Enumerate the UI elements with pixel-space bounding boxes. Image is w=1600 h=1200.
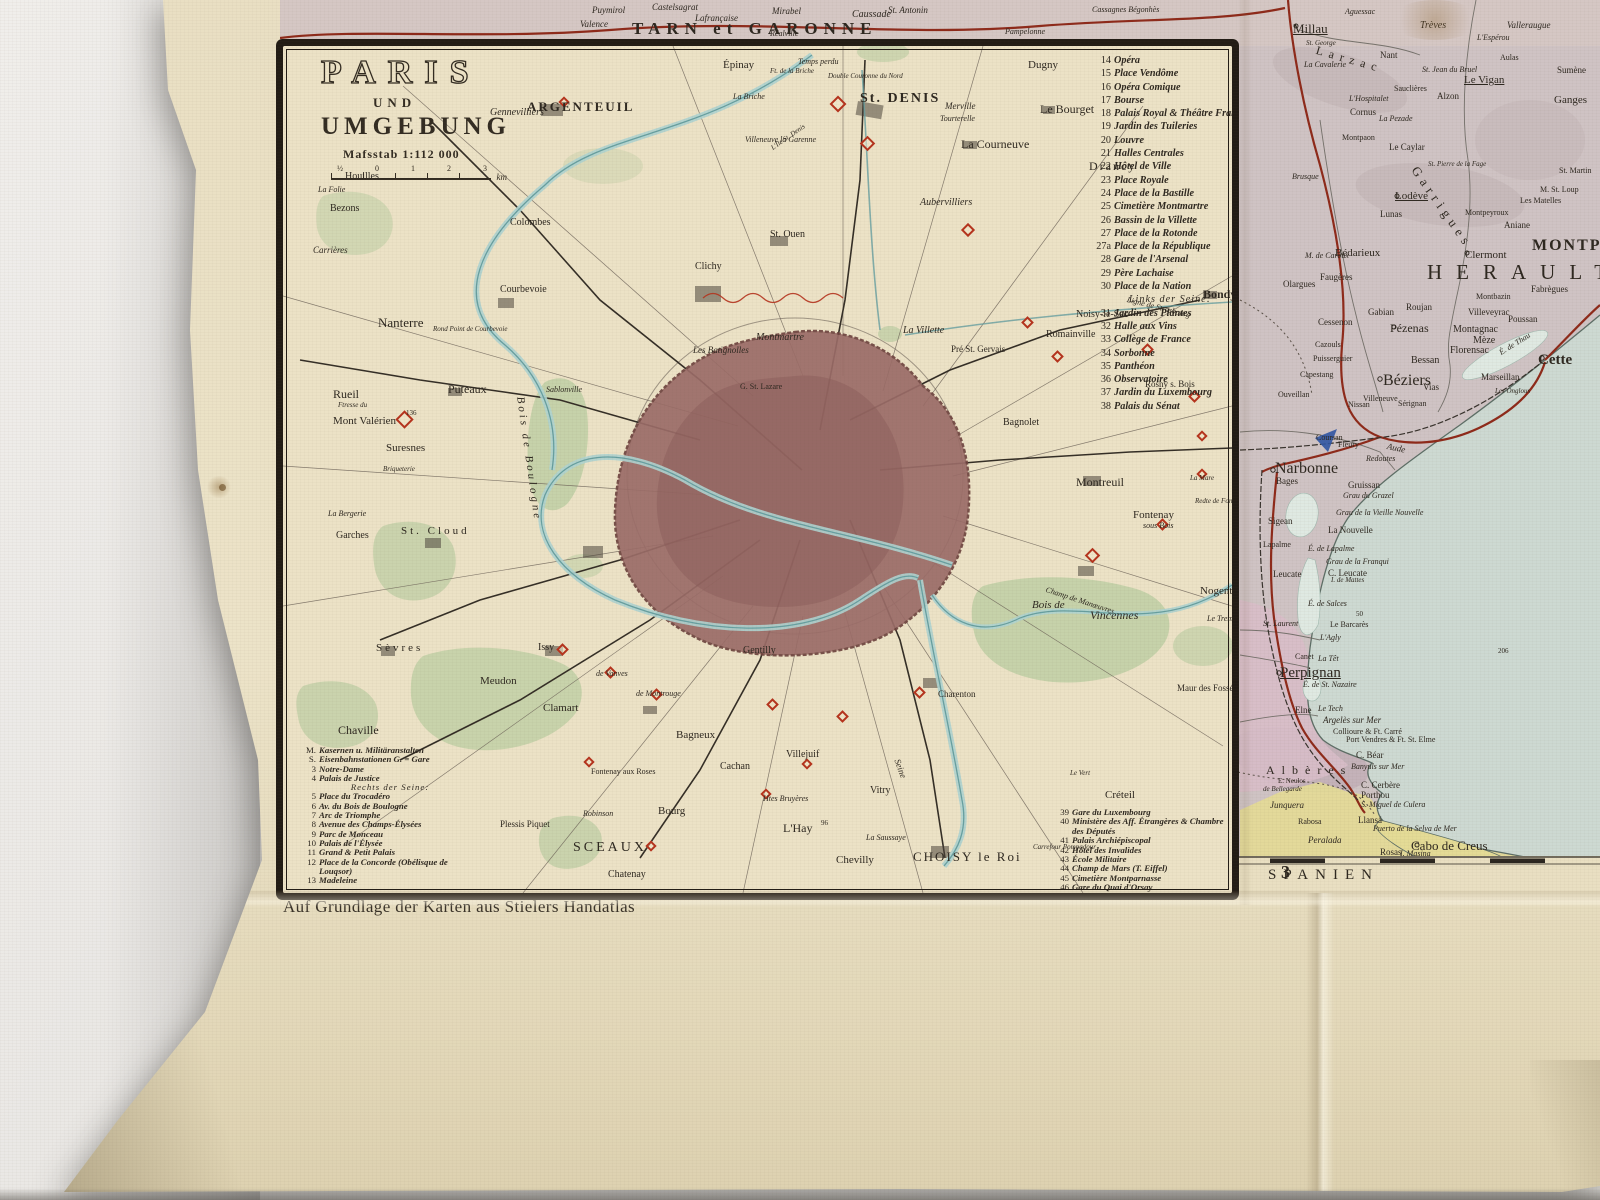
legend-text: Observatoire (1114, 373, 1168, 386)
place-label: Ouveillan (1278, 391, 1310, 399)
place-label: Double Couronne du Nord (828, 73, 903, 80)
legend-text: Place Vendôme (1114, 67, 1178, 80)
place-label: Vitry (870, 786, 891, 796)
legend-number: 33 (1095, 333, 1114, 346)
legend-number: 36 (1095, 373, 1114, 386)
place-label: Pampelonne (1005, 28, 1045, 36)
place-label: La Nouvelle (1328, 526, 1373, 535)
legend-number: 34 (1095, 347, 1114, 360)
place-label: Le Caylar (1389, 143, 1425, 152)
place-label: Seine (893, 758, 908, 779)
place-label: Sablonville (546, 386, 582, 394)
place-label: St. Pierre de la Fage (1428, 161, 1486, 168)
place-label: Millau (1293, 22, 1328, 35)
place-label: Olargues (1283, 280, 1315, 289)
legend-number: 3 (300, 765, 319, 774)
legend-number: 6 (300, 802, 319, 811)
place-label: L'Espérou (1477, 34, 1510, 42)
place-label: Redte de Fontenay (1195, 498, 1232, 505)
place-label: Chatenay (608, 870, 646, 880)
legend-text: Madeleine (319, 876, 357, 885)
place-label: Meudon (480, 676, 517, 687)
legend-bottom-right: 39 Gare du Luxembourg 40 Ministère des A… (1053, 808, 1228, 893)
legend-number: 22 (1095, 160, 1114, 173)
legend-row: 29 Père Lachaise (1095, 267, 1232, 280)
place-label: Carrières (313, 246, 348, 255)
place-label: St. DENIS (860, 92, 940, 106)
place-label: Alzon (1437, 92, 1459, 101)
place-label: Plessis Piquet (500, 820, 550, 829)
place-label: Gruissan (1348, 481, 1380, 490)
legend-row: 12 Place de la Concorde (Obélisque de Lo… (300, 858, 480, 877)
place-label: 136 (406, 410, 417, 417)
place-label: Sérignan (1398, 400, 1426, 408)
legend-text: Cimetière Montmartre (1114, 200, 1208, 213)
scale-bar-line (331, 173, 491, 180)
place-label: Grau du Grazel (1343, 492, 1394, 500)
title-und: UND (373, 95, 551, 111)
legend-number: 46 (1053, 883, 1072, 892)
place-label: 3 (1281, 863, 1290, 881)
legend-number: 20 (1095, 134, 1114, 147)
place-label: Ganges (1554, 95, 1587, 106)
place-label: Junquera (1270, 801, 1304, 810)
legend-number: 26 (1095, 214, 1114, 227)
legend-number: 27a (1095, 240, 1114, 253)
place-label: Aguessac (1345, 8, 1375, 16)
legend-number: 14 (1095, 54, 1114, 67)
place-label: Montmartre (756, 333, 804, 343)
legend-text: Louvre (1114, 134, 1144, 147)
legend-number: 23 (1095, 174, 1114, 187)
legend-number: 35 (1095, 360, 1114, 373)
legend-row: 21 Halles Centrales (1095, 147, 1232, 160)
legend-text: Jardin des Plantes (1114, 307, 1192, 320)
place-label: TARN et GARONNE (632, 20, 878, 37)
place-label: St. Ouen (770, 230, 805, 240)
place-label: Marseillan (1481, 373, 1520, 382)
scale-ticks: ½0123 (337, 164, 487, 173)
legend-text: Bourse (1114, 94, 1144, 107)
place-label: Sigean (1268, 517, 1293, 526)
legend-row: 30 Place de la Nation (1095, 280, 1232, 293)
place-label: 206 (1498, 648, 1509, 655)
legend-number: 13 (300, 876, 319, 885)
place-label: Chevilly (836, 855, 874, 866)
place-label: Chaville (338, 724, 379, 736)
legend-text: Place Royale (1114, 174, 1169, 187)
place-label: Créteil (1105, 790, 1135, 801)
place-label: I. de Mattes (1331, 577, 1364, 584)
title-paris: PARIS (321, 54, 551, 92)
legend-text: Panthéon (1114, 360, 1155, 373)
paper-curl-shadow (1530, 1060, 1600, 1192)
place-label: Albères (1266, 764, 1352, 776)
place-label: Suresnes (386, 443, 425, 454)
legend-number: 12 (300, 858, 319, 867)
photo-of-map: ValencePuymirolCastelsagratLafrançaiseTA… (0, 0, 1600, 1200)
legend-row: 27 Place de la Rotonde (1095, 227, 1232, 240)
place-label: Roujan (1406, 303, 1432, 312)
legend-row: 19 Jardin des Tuileries (1095, 120, 1232, 133)
place-label: Rabosa (1298, 818, 1322, 826)
legend-text: Halle aux Vins (1114, 320, 1177, 333)
legend-row: 25 Cimetière Montmartre (1095, 200, 1232, 213)
legend-text: Gare du Quai d'Orsay (1072, 883, 1152, 892)
place-label: Grau de la Vieille Nouvelle (1336, 509, 1423, 517)
place-label: Pézenas (1390, 322, 1429, 334)
legend-number: 18 (1095, 107, 1114, 120)
place-label: É. de Salces (1308, 600, 1347, 608)
place-label: Le Tech (1318, 705, 1343, 713)
legend-number: 8 (300, 820, 319, 829)
place-label: Clermont (1465, 250, 1507, 261)
place-label: Fontenay aux Roses (591, 768, 655, 776)
place-label: Lapalme (1263, 541, 1291, 549)
place-label: M. St. Loup (1540, 186, 1579, 194)
legend-number: 5 (300, 792, 319, 801)
place-label: Valence (580, 20, 608, 29)
place-label: Ftresse du (338, 402, 367, 409)
place-label: Gentilly (743, 646, 776, 656)
legend-number: 31 (1095, 307, 1114, 320)
legend-text: Place de la Concorde (Obélisque de Louqs… (319, 858, 480, 877)
inset-title: PARIS UND UMGEBUNG Mafsstab 1:112 000 ½0… (321, 54, 551, 180)
place-label: La Mare (1190, 475, 1214, 482)
stain (182, 630, 202, 646)
place-label: de Montrouge (636, 690, 681, 698)
legend-text: Halles Centrales (1114, 147, 1184, 160)
legend-text: Links der Seine: (1129, 293, 1211, 306)
place-label: Colombes (510, 218, 551, 228)
legend-number: 19 (1095, 120, 1114, 133)
legend-text: Sorbonne (1114, 347, 1155, 360)
place-label: Mont Valérien (333, 416, 396, 427)
place-label: Le Bourget (1040, 103, 1094, 115)
scale-tick: 3 (483, 164, 487, 173)
place-label: E. Neulos (1278, 778, 1306, 785)
place-label: Sèvres (376, 643, 423, 654)
legend-row: 46 Gare du Quai d'Orsay (1053, 883, 1228, 892)
place-label: Porthou (1361, 791, 1390, 800)
place-label: La Bergerie (328, 510, 366, 518)
legend-text: Hôtel de Ville (1114, 160, 1171, 173)
place-label: Aniane (1504, 221, 1530, 230)
place-label: Dugny (1028, 60, 1058, 71)
legend-row: 20 Louvre (1095, 134, 1232, 147)
legend-text: Place de la Bastille (1114, 187, 1194, 200)
place-label: Le Vigan (1464, 75, 1504, 86)
place-label: Briqueterie (383, 466, 415, 473)
legend-number: 15 (1095, 67, 1114, 80)
place-label: Nant (1380, 51, 1398, 60)
place-label: Fontenay (1133, 510, 1174, 521)
place-label: Argelès sur Mer (1323, 716, 1381, 725)
place-label: Montpeyroux (1465, 209, 1509, 217)
legend-row: 26 Bassin de la Villette (1095, 214, 1232, 227)
place-label: Maur des Fossés (1177, 684, 1232, 693)
legend-row: 16 Opéra Comique (1095, 81, 1232, 94)
place-label: Épinay (723, 60, 754, 71)
legend-number: 21 (1095, 147, 1114, 160)
place-label: de Bellegarde (1263, 786, 1302, 793)
place-label: Castelsagrat (652, 3, 698, 12)
legend-number: 16 (1095, 81, 1114, 94)
stain (246, 752, 258, 762)
place-label: Les Batignolles (693, 346, 749, 355)
place-label: Merville (945, 102, 976, 111)
place-label: Poussan (1508, 315, 1538, 324)
place-label: St. Jean du Bruel (1422, 66, 1477, 74)
scale-label: Mafsstab 1:112 000 (343, 147, 551, 162)
legend-number: 29 (1095, 267, 1114, 280)
scale-tick: 1 (411, 164, 415, 173)
place-label: Florensac (1450, 346, 1489, 356)
place-label: Cornus (1350, 108, 1376, 117)
legend-row: 27a Place de la République (1095, 240, 1232, 253)
place-label: Peralada (1308, 836, 1342, 845)
place-label: Lunas (1380, 210, 1402, 219)
place-label: La Cavalerie (1304, 61, 1346, 69)
place-label: Romainville (1046, 330, 1095, 340)
legend-row: 32 Halle aux Vins (1095, 320, 1232, 333)
place-label: L'Agly (1320, 634, 1341, 642)
place-label: É. de St. Nazaire (1303, 681, 1357, 689)
legend-row: Links der Seine: (1095, 293, 1232, 306)
place-label: CHOISY le Roi (913, 850, 1022, 863)
place-label: Montpaon (1342, 134, 1375, 142)
legend-row: 13 Madeleine (300, 876, 480, 885)
place-label: Rosas (1380, 848, 1402, 857)
place-label: Bagneux (676, 730, 715, 741)
legend-text: Opéra Comique (1114, 81, 1181, 94)
legend-number: 24 (1095, 187, 1114, 200)
place-label: Perpignan (1280, 666, 1341, 681)
place-label: Tourterelle (940, 115, 975, 123)
place-label: Cazouls (1315, 341, 1341, 349)
place-label: Robinson (583, 810, 613, 818)
place-label: Nanterre (378, 316, 423, 329)
legend-row: 15 Place Vendôme (1095, 67, 1232, 80)
place-label: C. Cerbère (1361, 781, 1400, 790)
place-label: La Folie (318, 186, 345, 194)
legend-right: 14 Opéra 15 Place Vendôme 16 Opéra Comiq… (1095, 54, 1232, 413)
legend-row: 38 Palais du Sénat (1095, 400, 1232, 413)
scale-bar: ½0123 km (331, 164, 501, 180)
place-label: Le Tremblay (1207, 615, 1232, 623)
place-label: Rond Point de Courbevoie (433, 326, 507, 333)
legend-row: 31 Jardin des Plantes (1095, 307, 1232, 320)
legend-row: 35 Panthéon (1095, 360, 1232, 373)
stain (206, 476, 232, 498)
place-label: Mirabel (772, 7, 801, 16)
place-label: Temps perdu (798, 58, 839, 66)
place-label: Cassagnes Bégonhès (1092, 6, 1159, 14)
place-label: Redoutes (1366, 455, 1395, 463)
legend-number: 37 (1095, 386, 1114, 399)
scale-tick: 2 (447, 164, 451, 173)
legend-row: 23 Place Royale (1095, 174, 1232, 187)
place-label: Banyuls sur Mer (1351, 763, 1404, 771)
legend-row: 36 Observatoire (1095, 373, 1232, 386)
place-label: É. de Lapalme (1308, 545, 1354, 553)
map-sheet: ValencePuymirolCastelsagratLafrançaiseTA… (0, 0, 1600, 1200)
place-label: Clamart (543, 703, 578, 714)
paris-inset-map: ARGENTEUILSt. DENISHouillesBezonsCarrièr… (283, 46, 1232, 893)
place-label: Le Vert (1070, 770, 1090, 777)
place-label: Nogent s.M. (1200, 586, 1232, 597)
place-label: Aubervilliers (920, 198, 972, 208)
legend-row: 28 Gare de l'Arsenal (1095, 253, 1232, 266)
paper-curl-shadow (58, 930, 288, 1192)
place-label: Vias (1423, 383, 1439, 392)
place-label: St. Martin (1559, 167, 1591, 175)
place-label: Sauclières (1394, 85, 1427, 93)
place-label: Fleury (1338, 441, 1359, 449)
legend-number: 38 (1095, 400, 1114, 413)
place-label: G. St. Lazare (740, 383, 782, 391)
place-label: Bois de (1032, 600, 1065, 611)
place-label: L'Hospitalet (1349, 95, 1389, 103)
place-label: St. Laurent (1263, 620, 1298, 628)
place-label: Charenton (938, 690, 976, 699)
legend-text: Palais Royal & Théâtre Franç. (1114, 107, 1232, 120)
place-label: Villejuif (786, 750, 819, 760)
legend-text: Jardin du Luxembourg (1114, 386, 1212, 399)
place-label: Courbevoie (500, 285, 547, 295)
place-label: Port Vendres & Ft. St. Elme (1346, 736, 1435, 744)
scale-tick: ½ (337, 164, 343, 173)
place-label: HERAULT (1427, 262, 1600, 283)
place-label: Montbazin (1476, 293, 1511, 301)
legend-text: Place de la Nation (1114, 280, 1191, 293)
legend-text: Palais du Sénat (1114, 400, 1180, 413)
place-label: Montreuil (1076, 476, 1124, 488)
place-label: 50 (1356, 611, 1363, 618)
legend-number: 4 (300, 774, 319, 783)
place-label: Aulas (1500, 54, 1519, 62)
place-label: Réalville (770, 30, 798, 38)
place-label: M. de Caroux (1305, 252, 1349, 260)
place-label: La Pezade (1379, 115, 1413, 123)
place-label: La Saussaye (866, 834, 906, 842)
legend-row: 14 Opéra (1095, 54, 1232, 67)
place-label: Issy (538, 643, 554, 653)
place-label: La Têt (1318, 655, 1339, 663)
legend-number: 7 (300, 811, 319, 820)
legend-number: 17 (1095, 94, 1114, 107)
place-label: Cachan (720, 762, 750, 772)
place-label: Cessenon (1318, 318, 1353, 327)
place-label: 96 (821, 820, 828, 827)
place-label: Bessan (1411, 356, 1439, 366)
place-label: Aude (1386, 442, 1406, 455)
place-label: Bages (1276, 477, 1298, 486)
place-label: Puerto de la Selva de Mer (1373, 825, 1457, 833)
place-label: Bezons (330, 204, 359, 214)
place-label: Bagnolet (1003, 418, 1039, 428)
place-label: Puymirol (592, 6, 625, 15)
place-label: Bourg (658, 806, 685, 817)
legend-row: 22 Hôtel de Ville (1095, 160, 1232, 173)
place-label: É. de Thau (1498, 332, 1532, 357)
place-label: Villeveyrac (1468, 308, 1509, 317)
place-label: Gabian (1368, 308, 1394, 317)
legend-text: Opéra (1114, 54, 1140, 67)
place-label: S. Miguel de Culera (1361, 801, 1425, 809)
place-label: Grau de la Franqui (1326, 558, 1389, 566)
place-label: SCEAUX (573, 841, 647, 855)
place-label: Leucate (1273, 570, 1301, 579)
legend-row: 37 Jardin du Luxembourg (1095, 386, 1232, 399)
legend-number: 40 (1053, 817, 1072, 826)
place-label: Sumène (1557, 66, 1586, 75)
place-label: Faugères (1320, 273, 1353, 282)
place-label: Ft. de la Briche (770, 68, 814, 75)
table-edge-shadow (0, 1188, 1600, 1200)
legend-bottom-left: M. Kasernen u. Militäranstalten S. Eisen… (300, 746, 480, 885)
legend-text: Père Lachaise (1114, 267, 1174, 280)
place-label: Valleraugue (1507, 21, 1551, 30)
legend-row: 34 Sorbonne (1095, 347, 1232, 360)
place-label: Cette (1538, 353, 1572, 368)
place-label: de Vanves (596, 670, 628, 678)
place-label: Narbonne (1275, 461, 1338, 477)
place-label: Htes Bruyères (763, 795, 808, 803)
legend-row: 17 Bourse (1095, 94, 1232, 107)
scale-tick: 0 (375, 164, 379, 173)
legend-number: 27 (1095, 227, 1114, 240)
place-label: Nissan (1348, 401, 1370, 409)
legend-row: 24 Place de la Bastille (1095, 187, 1232, 200)
place-label: Le Barcarès (1330, 621, 1368, 629)
legend-text: Jardin des Tuileries (1114, 120, 1197, 133)
place-label: La Courneuve (961, 138, 1029, 150)
place-label: Pré St. Gervais (951, 345, 1005, 354)
legend-number: 28 (1095, 253, 1114, 266)
place-label: Elne (1295, 706, 1312, 715)
place-label: Clichy (695, 262, 722, 272)
place-label: Canet (1295, 653, 1314, 661)
legend-number: S. (300, 755, 319, 764)
fold-crease (1306, 893, 1334, 1193)
place-label: Bois de Boulogne (514, 396, 542, 522)
legend-text: Bassin de la Villette (1114, 214, 1197, 227)
place-label: I. Masina (1400, 850, 1431, 858)
title-umgebung: UMGEBUNG (321, 113, 551, 141)
place-label: Capestang (1300, 371, 1333, 379)
place-label: Caussade (852, 10, 891, 20)
place-label: Fabrègues (1531, 285, 1568, 294)
place-label: Puteaux (448, 383, 487, 395)
place-label: Garches (336, 531, 369, 541)
credit-caption: Auf Grundlage der Karten aus Stielers Ha… (283, 897, 635, 917)
legend-text: Collège de France (1114, 333, 1191, 346)
scale-unit: km (497, 172, 508, 182)
legend-row: 33 Collège de France (1095, 333, 1232, 346)
place-label: La Villette (903, 326, 944, 336)
place-label: St. Cloud (401, 526, 470, 537)
place-label: Les Matelles (1520, 197, 1561, 205)
place-label: C. Béar (1356, 751, 1384, 760)
place-label: St. Antonin (888, 6, 928, 15)
place-label: Les Onglous (1495, 388, 1530, 395)
place-label: Montagnac (1453, 325, 1498, 335)
legend-row: 40 Ministère des Aff. Étrangères & Chamb… (1053, 817, 1228, 836)
place-label: MONTPELLIER (1532, 238, 1600, 254)
legend-text: Place de la République (1114, 240, 1210, 253)
place-label: L'Hay (783, 822, 812, 834)
